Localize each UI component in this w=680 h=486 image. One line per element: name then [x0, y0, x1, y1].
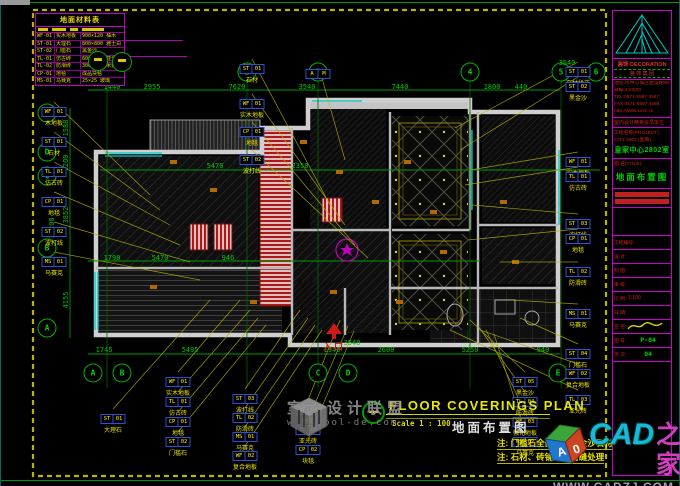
legend-table: 地面材料表 WF-01实木地板900×120 柚木ST-01大理石800×800…: [35, 13, 125, 86]
callout-number: 03: [246, 395, 257, 403]
callout-code-box: MS01: [42, 257, 67, 267]
legend-code: CP-01: [36, 71, 55, 77]
titleblock-row: 设 计:: [613, 250, 671, 264]
org-line: 室内设计精英会员单位: [614, 119, 670, 126]
dimension-label: 440: [515, 83, 528, 91]
row-label: 比 例:: [614, 295, 626, 302]
material-callout: WF01木地板: [42, 98, 67, 127]
project-name: 皇家中心2802室: [614, 145, 670, 155]
callout-code-box: ST03: [233, 394, 258, 404]
callout-code-box: AM: [306, 69, 331, 79]
material-callout: CP02块毯: [296, 436, 321, 465]
callout-code: ST: [567, 350, 579, 358]
row-label: 审 核:: [614, 281, 626, 288]
axis-bubble: A: [38, 319, 57, 338]
legend-name: 仿古砖: [55, 56, 81, 62]
material-callout: MS01马赛克: [42, 248, 67, 277]
callout-code: CP: [167, 418, 179, 426]
callout-code-box: ST01: [42, 137, 67, 147]
legend-spec: 25×25 玻璃: [81, 78, 124, 84]
dimension-label: 4155: [62, 292, 70, 309]
callout-code-box: TL02: [566, 267, 591, 277]
callout-number: 01: [179, 418, 190, 426]
callout-number: 02: [579, 83, 590, 91]
cadzj-name-en: CAD: [589, 420, 654, 450]
callout-code: ST: [43, 228, 55, 236]
legend-row: WF-01实木地板900×120 柚木: [36, 33, 124, 41]
callout-code-box: WF01: [42, 107, 67, 117]
frame-line-left: [0, 0, 1, 486]
callout-label: 马赛克: [566, 320, 591, 329]
material-callout: WF02复合地板: [566, 360, 591, 389]
callout-code-box: ST01: [101, 414, 126, 424]
callout-number: 02: [309, 446, 320, 454]
titleblock-row: 图 号:P-04: [613, 334, 671, 348]
callout-number: 01: [179, 398, 190, 406]
material-callout: CP01地毯: [42, 188, 67, 217]
callout-label: 马赛克: [42, 268, 67, 277]
callout-code-box: TL02: [233, 413, 258, 423]
dimension-label: 940: [537, 346, 550, 354]
callout-code-box: MS01: [233, 432, 258, 442]
dimension-label: 3540: [299, 83, 316, 91]
entrance-marker: 入口: [323, 323, 345, 353]
drawing-title-section: 图 名(TITLE): 地面布置图: [613, 159, 671, 189]
company-name-section: 装饰 DECORATION 装 饰 集 团: [613, 59, 671, 80]
callout-code: ST: [167, 438, 179, 446]
callout-code-box: ST05: [513, 377, 538, 387]
titleblock-row: 比 例:1:100: [613, 292, 671, 306]
company-name: 装饰 DECORATION: [614, 60, 670, 68]
callout-code-box: CP01: [566, 234, 591, 244]
material-callout: ST02门槛石: [166, 428, 191, 457]
dimension-label: 2955: [144, 83, 161, 91]
legend-name: 防滑砖: [55, 63, 81, 69]
legend-row: TL-01仿古砖600×600 亚光: [36, 56, 124, 64]
material-callout: TL02防滑砖: [566, 258, 591, 287]
callout-label: 地毯: [42, 208, 67, 217]
material-callout: ST01石材: [240, 55, 265, 84]
callout-code-box: ST04: [566, 349, 591, 359]
callout-code: MS: [43, 258, 55, 266]
contact-line: 邮编:310000: [614, 88, 670, 95]
material-callout: ST02黑金沙: [566, 73, 591, 102]
entrance-arrow-icon: [326, 323, 342, 334]
cad-sheet: 地面材料表 WF-01实木地板900×120 柚木ST-01大理石800×800…: [0, 0, 680, 486]
drawing-title-en: FLOOR COVERINGS PLAN: [389, 398, 585, 413]
callout-number: 01: [253, 100, 264, 108]
row-label: 日 期:: [614, 309, 626, 316]
row-value: P-04: [640, 336, 656, 344]
callout-code: CP: [43, 198, 55, 206]
callout-code: ST: [241, 156, 253, 164]
material-callout: TL01仿古砖: [42, 158, 67, 187]
title-label: 图 名(TITLE):: [614, 160, 670, 167]
dimension-label: 5470: [152, 254, 169, 262]
callout-code-box: CP01: [240, 127, 265, 137]
legend-name: 门槛石: [55, 48, 81, 54]
callout-label: 防滑砖: [566, 278, 591, 287]
corner-artifact: [0, 0, 30, 5]
callout-label: 石材: [240, 75, 265, 84]
callout-code-box: WF01: [166, 377, 191, 387]
drawing-title-cn: 地面布置图: [452, 417, 530, 436]
forum-watermark: 室内设计联盟 www.cool-de.com: [287, 396, 407, 428]
row-value: 04: [644, 350, 652, 358]
callout-code-box: CP01: [42, 197, 67, 207]
cadzj-cube-icon: A 0: [543, 420, 589, 468]
titleblock-row: 日 期:: [613, 306, 671, 320]
row-label: 设 计:: [614, 253, 626, 260]
material-callout: CP01地毯: [240, 118, 265, 147]
callout-number: 02: [55, 228, 66, 236]
callout-label: 黑金沙: [566, 93, 591, 102]
callout-label: 波打线: [240, 166, 265, 175]
row-label: 工程编号:: [614, 239, 635, 246]
titleblock-drawing-title: 地面布置图: [614, 171, 670, 183]
legend-ext-line: [123, 56, 187, 57]
callout-number: 01: [55, 108, 66, 116]
callout-label: 木地板: [42, 118, 67, 127]
company-logo-icon: [614, 12, 670, 56]
project-sub: CITY 2802 (图审): [614, 136, 670, 143]
dimension-label: 5470: [207, 162, 224, 170]
callout-code: MS: [567, 310, 579, 318]
callout-number: M: [319, 70, 330, 78]
callout-code: ST: [514, 378, 526, 386]
callout-number: 01: [579, 173, 590, 181]
material-callout: ST01大理石: [101, 405, 126, 434]
callout-number: 01: [246, 433, 257, 441]
callout-label: 大理石: [101, 425, 126, 434]
frame-line-top: [0, 2, 680, 3]
axis-bubble: B: [113, 364, 132, 383]
legend-name: 实木地板: [55, 33, 81, 39]
dimension-label: 1790: [104, 254, 121, 262]
callout-code-box: ST02: [240, 155, 265, 165]
legend-title: 地面材料表: [36, 14, 124, 27]
material-callout: ST01石材: [42, 128, 67, 157]
callout-code-box: ST02: [166, 437, 191, 447]
cadzj-watermark: A 0 CAD 之家 WWW.CADZJ.COM: [543, 420, 680, 486]
callout-code: CP: [241, 128, 253, 136]
callout-code: TL: [567, 268, 579, 276]
title-block: 装饰 DECORATION 装 饰 集 团 地址:市中心城区建设路88号邮编:3…: [612, 10, 672, 476]
callout-number: 01: [179, 378, 190, 386]
material-callout: WF02复合地板: [233, 442, 258, 471]
callout-label: 仿古砖: [42, 178, 67, 187]
titleblock-row: 签 名:: [613, 320, 671, 334]
callout-number: 01: [579, 235, 590, 243]
callout-code: CP: [567, 235, 579, 243]
contact-line: 地址:市中心城区建设路88号: [614, 81, 670, 88]
callout-code: ST: [241, 65, 253, 73]
legend-callout-bubble: [112, 52, 132, 72]
contact-line: FAX:0571-8567 4568: [614, 102, 670, 109]
callout-code-box: WF01: [240, 99, 265, 109]
legend-name: 马赛克: [55, 78, 81, 84]
callout-number: 01: [55, 168, 66, 176]
row-label: 图 号:: [614, 337, 626, 344]
callout-code-box: TL01: [42, 167, 67, 177]
titleblock-row: 工程编号:: [613, 236, 671, 250]
callout-number: 01: [253, 65, 264, 73]
callout-code-box: WF02: [233, 451, 258, 461]
callout-code: CP: [297, 446, 309, 454]
row-label: 页 次:: [614, 351, 626, 358]
callout-code: TL: [234, 414, 246, 422]
callout-label: 地毯: [566, 245, 591, 254]
callout-code-box: TL01: [166, 397, 191, 407]
spacer-section: [613, 208, 671, 236]
callout-code-box: ST02: [42, 227, 67, 237]
legend-callout-bubble: [88, 51, 108, 71]
legend-row: MS-01马赛克25×25 玻璃: [36, 78, 124, 85]
contact-line: http://www.xxxx.cn: [614, 109, 670, 116]
legend-row: CP-01地毯成品块毯: [36, 71, 124, 79]
company-subtitle: 装 饰 集 团: [614, 69, 670, 78]
dimension-label: 2350: [292, 162, 309, 170]
stamp-section: [613, 189, 671, 208]
callout-code: WF: [234, 452, 246, 460]
callout-code: ST: [234, 395, 246, 403]
callout-code: TL: [167, 398, 179, 406]
callout-number: 01: [579, 310, 590, 318]
axis-bubble: 4: [461, 63, 480, 82]
titleblock-row: 页 次:04: [613, 348, 671, 362]
dimension-label: 1745: [96, 346, 113, 354]
callout-label: 波打线: [42, 238, 67, 247]
callout-code-box: MS01: [566, 309, 591, 319]
callout-number: 01: [55, 138, 66, 146]
company-logo-section: [613, 11, 671, 59]
callout-code: WF: [167, 378, 179, 386]
legend-code: TL-02: [36, 63, 55, 69]
material-callout: CP01地毯: [566, 225, 591, 254]
axis-bubble: D: [339, 364, 358, 383]
callout-number: 01: [55, 198, 66, 206]
material-callout: ST02波打线: [42, 218, 67, 247]
entrance-label: 入口: [323, 340, 345, 353]
callout-code-box: ST01: [240, 64, 265, 74]
callout-label: 石材: [42, 148, 67, 157]
legend-code: ST-02: [36, 48, 55, 54]
callout-code-box: ST02: [566, 82, 591, 92]
callout-code-box: TL01: [566, 172, 591, 182]
forum-cube-icon: [287, 396, 331, 438]
callout-code: WF: [43, 108, 55, 116]
legend-ext-line: [123, 40, 183, 41]
callout-code: WF: [241, 100, 253, 108]
callout-code: A: [307, 70, 319, 78]
legend-code: WF-01: [36, 33, 55, 39]
cadzj-url: WWW.CADZJ.COM: [553, 480, 680, 486]
contact-line: TEL:0571-8567 4567: [614, 95, 670, 102]
legend-row: TL-02防滑砖300×300 米黄: [36, 63, 124, 71]
dimension-label: 946: [222, 254, 235, 262]
callout-number: 02: [579, 370, 590, 378]
axis-bubble: C: [309, 364, 328, 383]
callout-number: 01: [253, 128, 264, 136]
row-label: 制 图:: [614, 267, 626, 274]
callout-code: ST: [102, 415, 114, 423]
legend-spec: 800×800 雅士白: [81, 41, 124, 47]
cadzj-name-cn: 之家: [656, 420, 680, 480]
callout-code: TL: [567, 173, 579, 181]
legend-row: ST-02门槛石黑金沙: [36, 48, 124, 56]
callout-number: 02: [253, 156, 264, 164]
material-callout: WF01实木地板: [240, 90, 265, 119]
callout-number: 04: [579, 350, 590, 358]
callout-code-box: CP02: [296, 445, 321, 455]
dimension-label: 7440: [392, 83, 409, 91]
legend-name: 地毯: [55, 71, 81, 77]
material-callout: ST02波打线: [240, 146, 265, 175]
legend-code: TL-01: [36, 56, 55, 62]
dimension-label: 2600: [378, 346, 395, 354]
callout-number: 02: [179, 438, 190, 446]
callout-number: 01: [114, 415, 125, 423]
legend-name: 大理石: [55, 41, 81, 47]
callout-code: ST: [43, 138, 55, 146]
legend-code: ST-01: [36, 41, 55, 47]
callout-code-box: CP01: [166, 417, 191, 427]
callout-label: 门槛石: [166, 448, 191, 457]
callout-number: 02: [246, 414, 257, 422]
callout-code: TL: [43, 168, 55, 176]
dimension-label: 1800: [484, 83, 501, 91]
callout-number: 02: [579, 268, 590, 276]
material-callout: MS01马赛克: [566, 300, 591, 329]
row-value: 1:100: [628, 295, 641, 301]
row-label: 签 名:: [614, 323, 626, 330]
callout-label: 复合地板: [233, 462, 258, 471]
contact-section: 地址:市中心城区建设路88号邮编:310000TEL:0571-8567 456…: [613, 80, 671, 118]
callout-label: 块毯: [296, 456, 321, 465]
legend-code: MS-01: [36, 78, 55, 84]
dimension-label: 5495: [182, 346, 199, 354]
titleblock-row: 审 核:: [613, 278, 671, 292]
titleblock-row: 制 图:: [613, 264, 671, 278]
callout-code: ST: [567, 83, 579, 91]
signature-scribble: [626, 320, 664, 332]
callout-number: 02: [246, 452, 257, 460]
dimension-label: 3540: [344, 339, 361, 347]
callout-number: 05: [526, 378, 537, 386]
legend-spec: 900×120 柚木: [81, 33, 124, 39]
callout-number: 01: [55, 258, 66, 266]
legend-row: ST-01大理石800×800 雅士白: [36, 41, 124, 49]
project-label: 工程名称(PROJECT):: [614, 129, 670, 136]
project-section: 工程名称(PROJECT): CITY 2802 (图审) 皇家中心2802室: [613, 128, 671, 159]
org-section: 室内设计精英会员单位: [613, 118, 671, 128]
dimension-label: 5250: [462, 346, 479, 354]
callout-code: MS: [234, 433, 246, 441]
legend-spec: 成品块毯: [81, 71, 124, 77]
callout-label: 仿古砖: [566, 183, 591, 192]
material-callout: AM: [306, 60, 331, 79]
callout-code-box: WF02: [566, 369, 591, 379]
callout-code: WF: [567, 370, 579, 378]
axis-bubble: A: [84, 364, 103, 383]
material-callout: TL01仿古砖: [566, 163, 591, 192]
